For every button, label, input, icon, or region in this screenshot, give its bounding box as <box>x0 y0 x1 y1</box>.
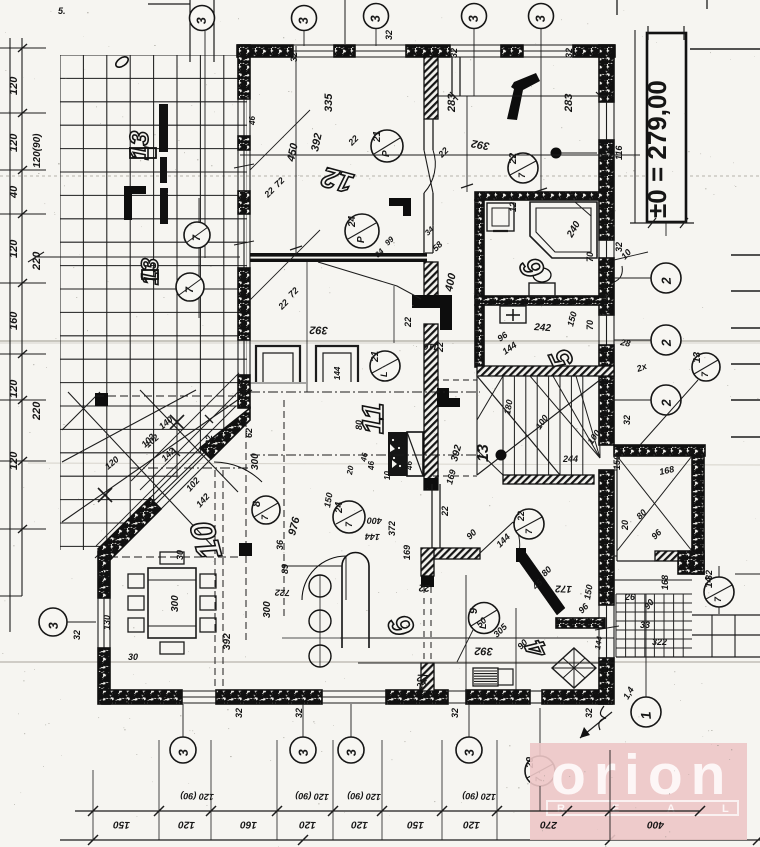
svg-text:32: 32 <box>289 52 299 62</box>
svg-text:300: 300 <box>262 601 273 618</box>
svg-text:120: 120 <box>8 133 20 152</box>
svg-text:150: 150 <box>612 455 622 470</box>
svg-text:32: 32 <box>384 30 394 40</box>
svg-text:283: 283 <box>446 94 458 113</box>
svg-text:169: 169 <box>402 545 412 560</box>
svg-text:120: 120 <box>8 239 20 258</box>
svg-text:9: 9 <box>468 607 480 614</box>
svg-text:160: 160 <box>240 818 257 830</box>
svg-text:400: 400 <box>647 818 665 830</box>
svg-text:32: 32 <box>622 415 632 425</box>
svg-text:13: 13 <box>475 444 492 462</box>
svg-text:120: 120 <box>178 818 195 830</box>
svg-text:12: 12 <box>508 202 518 212</box>
svg-text:20: 20 <box>620 520 630 531</box>
svg-text:14: 14 <box>704 576 715 588</box>
svg-text:46: 46 <box>367 461 376 471</box>
svg-text:120: 120 <box>8 76 20 95</box>
svg-text:62: 62 <box>244 428 254 438</box>
svg-text:150: 150 <box>407 818 424 830</box>
svg-text:±0 = 279,00: ±0 = 279,00 <box>642 80 672 218</box>
svg-text:E: E <box>612 803 619 815</box>
svg-text:168: 168 <box>660 575 670 590</box>
svg-text:32: 32 <box>450 708 460 718</box>
svg-text:22: 22 <box>440 506 450 517</box>
svg-text:283: 283 <box>563 94 575 113</box>
svg-text:116: 116 <box>614 145 624 160</box>
svg-text:orion: orion <box>551 743 733 807</box>
svg-text:46: 46 <box>405 461 414 471</box>
svg-text:L: L <box>722 803 729 815</box>
svg-text:120 (90): 120 (90) <box>462 791 496 802</box>
svg-text:89: 89 <box>280 564 290 574</box>
svg-text:120(90): 120(90) <box>32 133 43 168</box>
svg-text:22: 22 <box>435 342 445 353</box>
svg-text:36: 36 <box>275 539 285 550</box>
svg-text:144: 144 <box>365 531 380 542</box>
svg-text:5.: 5. <box>58 6 66 16</box>
svg-text:22: 22 <box>516 511 526 522</box>
svg-text:32: 32 <box>72 630 82 640</box>
svg-text:392: 392 <box>309 323 328 336</box>
svg-text:21: 21 <box>370 350 381 363</box>
svg-text:392: 392 <box>222 633 233 650</box>
svg-text:32: 32 <box>294 708 304 718</box>
svg-text:120: 120 <box>463 818 480 830</box>
svg-text:80: 80 <box>354 420 364 430</box>
svg-text:172: 172 <box>555 582 572 594</box>
svg-text:242: 242 <box>533 322 552 334</box>
svg-text:22: 22 <box>418 582 431 593</box>
svg-text:120 (90): 120 (90) <box>180 791 214 802</box>
svg-text:270: 270 <box>540 818 558 830</box>
svg-text:144: 144 <box>333 366 342 380</box>
svg-text:32: 32 <box>584 708 594 718</box>
svg-text:335: 335 <box>323 93 335 112</box>
svg-text:10: 10 <box>383 471 392 480</box>
svg-text:30: 30 <box>175 550 185 560</box>
svg-text:342: 342 <box>238 383 248 398</box>
svg-text:300: 300 <box>170 595 181 612</box>
svg-text:32: 32 <box>96 570 106 580</box>
svg-text:L: L <box>379 372 389 378</box>
svg-text:P: P <box>356 236 367 243</box>
svg-text:70: 70 <box>585 320 595 330</box>
svg-text:13: 13 <box>137 258 164 285</box>
svg-text:120 (90): 120 (90) <box>295 791 329 802</box>
svg-text:120 (90): 120 (90) <box>347 791 381 802</box>
svg-text:P: P <box>381 150 392 157</box>
svg-text:28: 28 <box>619 337 632 349</box>
svg-text:22: 22 <box>403 317 413 328</box>
svg-text:150: 150 <box>113 818 130 830</box>
svg-text:30: 30 <box>128 652 138 662</box>
svg-text:A: A <box>667 803 675 815</box>
svg-text:40: 40 <box>8 185 20 199</box>
svg-text:70: 70 <box>585 252 595 262</box>
svg-text:32: 32 <box>449 48 459 58</box>
svg-text:32: 32 <box>564 48 574 58</box>
svg-text:120: 120 <box>351 818 368 830</box>
svg-text:120: 120 <box>299 818 316 830</box>
svg-text:13: 13 <box>124 131 154 160</box>
svg-text:32: 32 <box>204 435 214 445</box>
svg-text:220: 220 <box>31 401 43 421</box>
svg-text:13: 13 <box>692 351 703 363</box>
svg-text:21: 21 <box>372 130 383 143</box>
svg-text:8: 8 <box>251 500 263 507</box>
svg-text:400: 400 <box>367 515 383 526</box>
svg-text:24: 24 <box>334 501 345 514</box>
svg-text:1: 1 <box>637 711 654 720</box>
svg-text:372: 372 <box>387 521 397 536</box>
svg-text:244: 244 <box>562 454 578 464</box>
svg-text:90: 90 <box>396 436 406 446</box>
svg-text:30: 30 <box>600 408 610 418</box>
svg-text:24: 24 <box>347 215 358 228</box>
svg-text:130: 130 <box>102 615 112 630</box>
svg-text:32: 32 <box>234 708 244 718</box>
svg-text:120: 120 <box>8 451 20 470</box>
svg-text:722: 722 <box>275 587 290 598</box>
svg-text:392: 392 <box>474 644 493 657</box>
svg-text:46: 46 <box>248 116 257 126</box>
svg-text:160: 160 <box>8 311 20 330</box>
svg-text:22: 22 <box>508 152 519 165</box>
